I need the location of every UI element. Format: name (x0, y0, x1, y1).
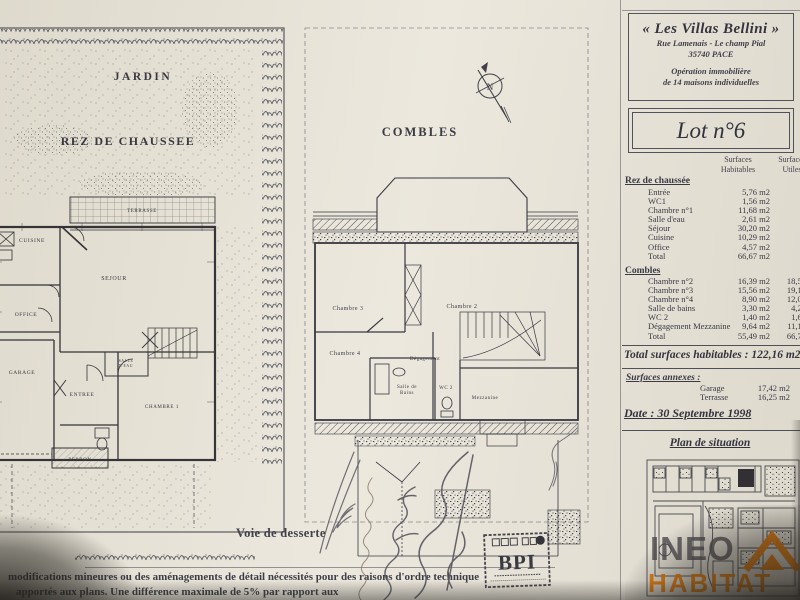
rdc-title-label: REZ DE CHAUSSEE (61, 134, 196, 148)
surface-table-combles: Chambre n°216,39 m218,56 Chambre n°315,5… (648, 277, 800, 341)
stairs-combles (460, 312, 545, 360)
combles-structure (313, 178, 580, 556)
chambre1-label: CHAMBRE 1 (145, 405, 179, 410)
column-header-habitables: Surfaces Habitables (708, 155, 768, 174)
terrasse-label: TERRASSE (127, 209, 157, 214)
wc2-label: WC 2 (439, 386, 453, 391)
cuisine-label: CUISINE (19, 238, 45, 244)
duct-shaft (405, 265, 421, 325)
mezzanine-label: Mezzanine (472, 396, 499, 401)
rule (622, 345, 800, 346)
project-operation-2: de 14 maisons individuelles (629, 77, 793, 88)
project-address-1: Rue Lamenais - Le champ Pial (629, 38, 793, 49)
chambre3-label: Chambre 3 (333, 306, 364, 312)
photo-shadow-bottom-right (625, 505, 800, 600)
annexes-title: Surfaces annexes : (626, 373, 700, 383)
project-title: « Les Villas Bellini » (629, 21, 793, 38)
surface-table-rdc: Entrée5,76 m2 WC11,56 m2 Chambre n°111,6… (648, 188, 770, 261)
north-arrow-icon: N (476, 62, 511, 123)
office-label: OFFICE (15, 312, 38, 318)
garage-label: GARAGE (9, 370, 36, 376)
chambre4-label: Chambre 4 (330, 351, 361, 357)
rule (622, 430, 800, 431)
photo-shadow-bottom-left (0, 515, 140, 600)
salle-eau-label-1: SALLE (119, 359, 134, 363)
salle-eau-label-2: D'EAU (119, 364, 133, 368)
section-title-rdc: Rez de chaussée (625, 176, 690, 186)
table-row: Dégagement Mezzanine9,64 m211,13 (648, 322, 800, 331)
stairs-rdc (148, 328, 197, 358)
salle-bains-label-1: Salle de (397, 385, 417, 390)
table-row: Total66,67 m2 (648, 252, 770, 261)
chambre2-label: Chambre 2 (447, 304, 478, 310)
table-row: Salle de bains3,30 m24,22 (648, 304, 800, 313)
door-arcs (38, 227, 133, 381)
dark-block-1 (435, 490, 490, 518)
jardin-area (0, 28, 284, 565)
voie-de-desserte-label: Voie de desserte (236, 526, 326, 541)
total-habitable-line: Total surfaces habitables : 122,16 m2 (624, 349, 800, 361)
plan-combles: COMBLES N (295, 20, 595, 565)
svg-text:N: N (487, 82, 494, 92)
perron-label: PERRON (68, 458, 91, 463)
plan-situation-title: Plan de situation (640, 437, 780, 449)
lot-number-box: Lot n°6 (628, 108, 794, 153)
plan-rez-de-chaussee: JARDIN REZ DE CHAUSSEE (0, 22, 292, 572)
degagement-label: Dégagement (410, 357, 440, 362)
jardin-label: JARDIN (114, 71, 172, 83)
highlighted-lot (738, 469, 754, 487)
stamp-seal-dot (536, 536, 545, 545)
scanned-floorplan-document: JARDIN REZ DE CHAUSSEE (0, 0, 800, 600)
table-row: Total55,49 m266,70 (648, 332, 800, 341)
cross-marks (54, 332, 158, 396)
section-title-combles: Combles (625, 266, 660, 276)
salle-bains-label-2: Bains (400, 391, 414, 396)
document-date: Date : 30 Septembre 1998 (624, 406, 751, 421)
room-labels-combles: Chambre 3 Chambre 2 Chambre 4 Dégagement… (330, 304, 499, 401)
rule (622, 368, 800, 369)
entree-label: ENTREE (70, 392, 95, 398)
column-header-utiles: Surfaces Utiles (762, 155, 800, 174)
hedge-top (0, 29, 283, 44)
sejour-label: SEJOUR (101, 276, 127, 282)
project-operation-1: Opération immobilière (629, 66, 793, 77)
stamp-text: BPI (498, 549, 537, 574)
project-address-2: 35740 PACE (629, 49, 793, 60)
combles-title-label: COMBLES (382, 125, 459, 139)
hedge-right (262, 44, 282, 464)
annex-row: Terrasse 16,25 m2 (700, 393, 790, 402)
lot-number: Lot n°6 (632, 112, 790, 149)
project-header-box: « Les Villas Bellini » Rue Lamenais - Le… (628, 13, 794, 101)
panel-border (305, 28, 588, 522)
